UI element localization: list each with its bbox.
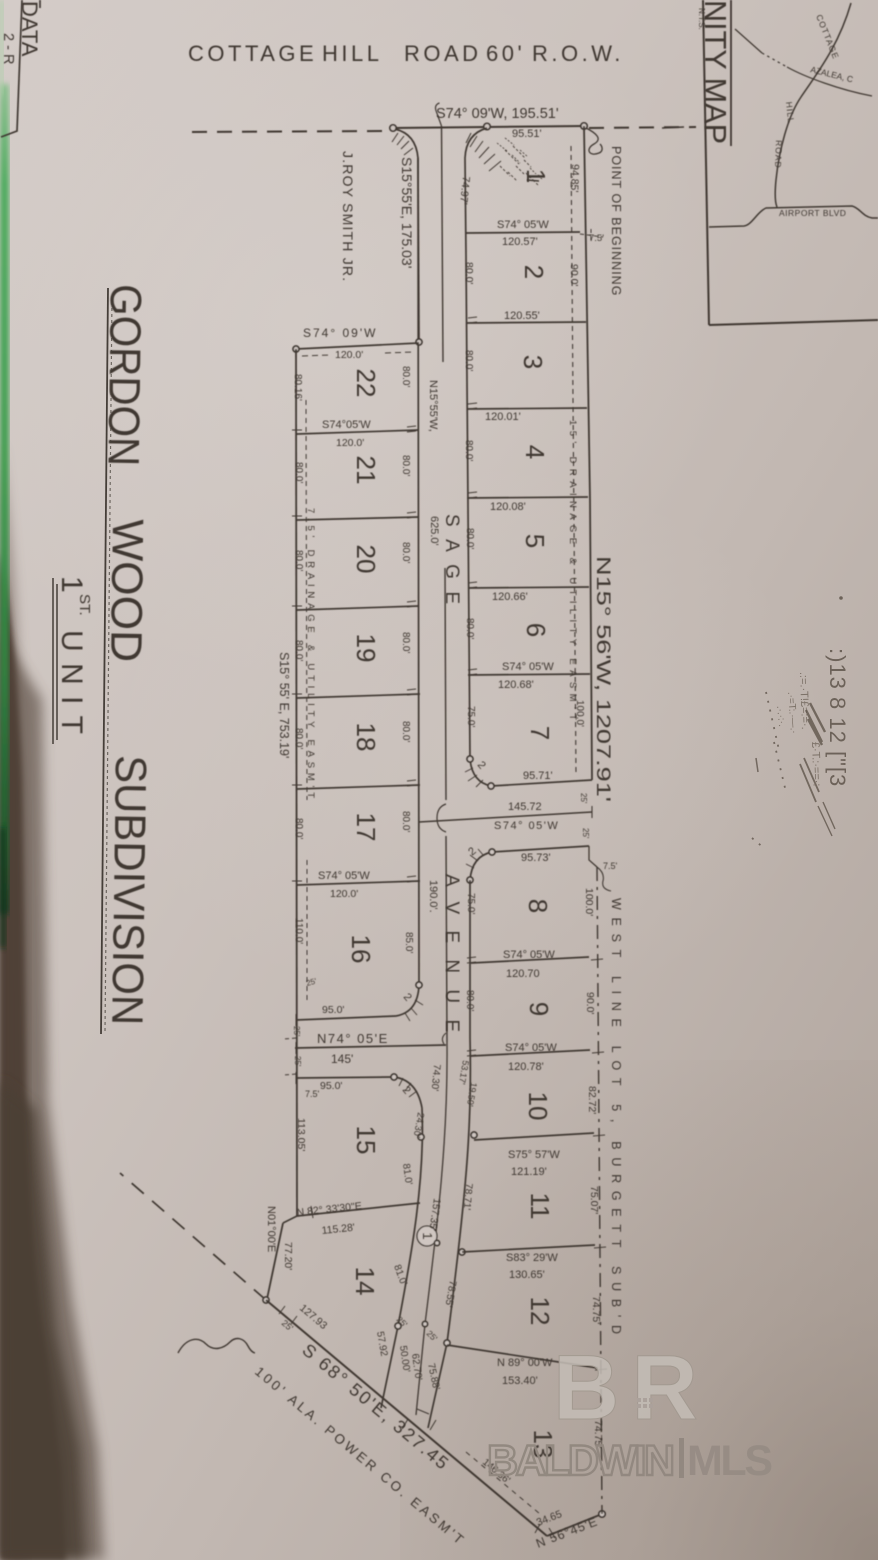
svg-text:S74° 09'W, 195.51': S74° 09'W, 195.51' [436,106,559,122]
svg-text:N01°00'E: N01°00'E [265,1206,277,1252]
svg-text:100.0': 100.0' [583,888,595,916]
svg-text:80.0': 80.0' [464,528,475,549]
svg-text:S74° 05'W: S74° 05'W [494,820,559,832]
svg-text:95.51': 95.51' [512,128,542,140]
svg-text:S15°55'E, 175.03': S15°55'E, 175.03' [399,157,415,268]
svg-text:120.57': 120.57' [502,236,538,248]
svg-text:5: 5 [520,534,550,548]
svg-text:S83° 29'W: S83° 29'W [506,1252,558,1264]
svg-text:85.0': 85.0' [403,932,414,953]
svg-text:75.0': 75.0' [465,893,476,914]
svg-text:N74° 05'E: N74° 05'E [317,1031,389,1046]
svg-text:14: 14 [350,1267,380,1296]
svg-text:6: 6 [521,623,551,637]
svg-text:N15°55'W,: N15°55'W, [427,380,439,432]
svg-text:120.0': 120.0' [335,349,363,361]
svg-text:11: 11 [525,1193,555,1220]
svg-text:22: 22 [351,369,381,398]
svg-text:4: 4 [520,445,550,459]
svg-text:120.01': 120.01' [485,411,521,423]
svg-text:120.0': 120.0' [336,437,364,449]
svg-text:80.0': 80.0' [293,728,304,749]
svg-text:95.71': 95.71' [523,770,553,782]
svg-text:77.20': 77.20' [282,1242,294,1270]
svg-text:AIRPORT BLVD: AIRPORT BLVD [779,208,846,218]
svg-text:78.71': 78.71' [461,1183,474,1211]
svg-text:7.5': 7.5' [305,1089,320,1099]
svg-text:2: 2 [519,265,549,279]
svg-text:121.19': 121.19' [511,1166,547,1178]
svg-text:POINT OF BEGINNING: POINT OF BEGINNING [609,146,623,296]
svg-text:1: 1 [420,1232,435,1239]
svg-text:S74° 05'W: S74° 05'W [502,661,554,673]
svg-text:S74° 05'W: S74° 05'W [497,219,549,231]
svg-text:19: 19 [351,634,381,663]
svg-text:75.0': 75.0' [465,706,476,727]
svg-text:120.66': 120.66' [492,591,528,603]
svg-text:80.0': 80.0' [464,618,475,639]
svg-text:80.0': 80.0' [463,262,475,284]
svg-text:74.75': 74.75' [590,1296,602,1324]
svg-text:N15° 56'W, 1207.91': N15° 56'W, 1207.91' [592,556,613,802]
svg-text:25': 25' [579,793,588,804]
svg-text:80.0': 80.0' [463,440,474,461]
svg-text:7: 7 [525,726,555,740]
svg-text:80.0': 80.0' [400,721,411,742]
svg-text:1: 1 [55,576,88,593]
svg-text:80.0': 80.0' [400,632,411,653]
svg-text:SUBDIVISION: SUBDIVISION [102,755,155,1026]
svg-text:80.0': 80.0' [293,640,304,661]
svg-text:£·T.:·==·:: £·T.:·==·: [809,742,823,787]
svg-text:75.07': 75.07' [588,1186,600,1214]
svg-text:25': 25' [292,1026,301,1037]
svg-text:S74° 05'W: S74° 05'W [318,870,370,882]
svg-text:UNIT: UNIT [55,630,88,736]
svg-text:21: 21 [351,456,381,485]
svg-text:MLS: MLS [687,1437,773,1485]
svg-text:N 89° 00'W: N 89° 00'W [497,1357,553,1369]
svg-text:74.30': 74.30' [429,1064,442,1092]
svg-text:94.85': 94.85' [568,164,581,193]
svg-text:J.ROY SMITH JR.: J.ROY SMITH JR. [340,151,356,282]
svg-text:S15° 55' E, 753.19': S15° 55' E, 753.19' [277,652,291,758]
svg-text:3: 3 [518,355,548,369]
svg-text:95.73': 95.73' [521,852,551,864]
svg-text:120.55': 120.55' [504,310,540,322]
svg-text:S75° 57'W: S75° 57'W [508,1149,560,1161]
svg-text:120.70: 120.70 [506,968,540,980]
svg-text:12: 12 [525,1297,555,1326]
svg-text:80.16': 80.16' [292,374,303,401]
svg-text:2 - R: 2 - R [0,33,16,64]
svg-text:25': 25' [293,1056,302,1067]
svg-text:80.0': 80.0' [400,366,411,387]
svg-text:S74° 05'W: S74° 05'W [503,949,555,961]
svg-text:100.0': 100.0' [574,700,585,727]
svg-text:18: 18 [351,723,381,752]
svg-text:BR: BR [553,1337,710,1439]
svg-text:80.0': 80.0' [463,350,474,371]
svg-text:145': 145' [331,1052,353,1066]
svg-text:ST.: ST. [76,594,93,616]
svg-text:COTTAGEHILLROAD60'R.O.W.: COTTAGEHILLROAD60'R.O.W. [188,41,624,66]
svg-text:120.0': 120.0' [330,888,358,900]
svg-text:80.0': 80.0' [293,550,304,571]
svg-text:95.0': 95.0' [322,1004,344,1016]
svg-text::)13 8 12 ["[3: :)13 8 12 ["[3 [825,648,850,787]
svg-text:120.68': 120.68' [498,679,534,691]
svg-text:15: 15 [351,1126,381,1155]
svg-text:DATA: DATA [17,1,42,57]
svg-text:82.72': 82.72' [586,1086,598,1114]
svg-text:8: 8 [523,899,553,913]
svg-text:190.0'.: 190.0'. [427,880,439,913]
svg-text:153.40': 153.40' [502,1375,538,1387]
svg-text:S74°05'W: S74°05'W [322,419,371,431]
svg-text:95.0': 95.0' [320,1080,342,1092]
svg-text:9: 9 [524,1002,554,1016]
svg-text:10: 10 [523,1092,553,1121]
svg-text:.·.·:·.: .·.·:·. [774,705,787,727]
svg-text:16: 16 [346,935,376,964]
svg-text:145.72: 145.72 [508,801,542,813]
svg-text:80.0': 80.0' [400,811,411,832]
svg-text:90.0': 90.0' [568,264,580,286]
svg-text:BALDWIN: BALDWIN [487,1437,675,1485]
svg-text:80.0': 80.0' [400,542,411,563]
svg-text:20: 20 [351,545,381,574]
svg-text:N.T.S.: N.T.S. [697,8,706,30]
svg-text:80.0': 80.0' [400,455,411,476]
svg-text:120.78': 120.78' [508,1061,544,1073]
svg-text:25': 25' [581,828,590,839]
svg-text:1: 1 [521,169,551,183]
svg-text:7.5': 7.5' [589,233,604,244]
svg-text:7.5': 7.5' [603,861,618,871]
svg-text:90.0': 90.0' [584,992,596,1014]
svg-text:130.65': 130.65' [509,1269,545,1281]
svg-text:113.05': 113.05' [295,1118,307,1151]
svg-text:120.08': 120.08' [490,501,526,513]
svg-text:S74° 05'W: S74° 05'W [505,1042,557,1054]
svg-text:80.0': 80.0' [293,818,304,839]
svg-text:80.0': 80.0' [464,990,475,1011]
svg-text:110.0': 110.0' [293,918,304,944]
svg-text:17: 17 [351,813,381,842]
svg-text:80.0': 80.0' [293,462,304,483]
svg-text:ROAD: ROAD [773,140,784,169]
svg-text:S74° 09'W: S74° 09'W [303,326,377,340]
svg-text:625.0': 625.0' [428,516,440,546]
